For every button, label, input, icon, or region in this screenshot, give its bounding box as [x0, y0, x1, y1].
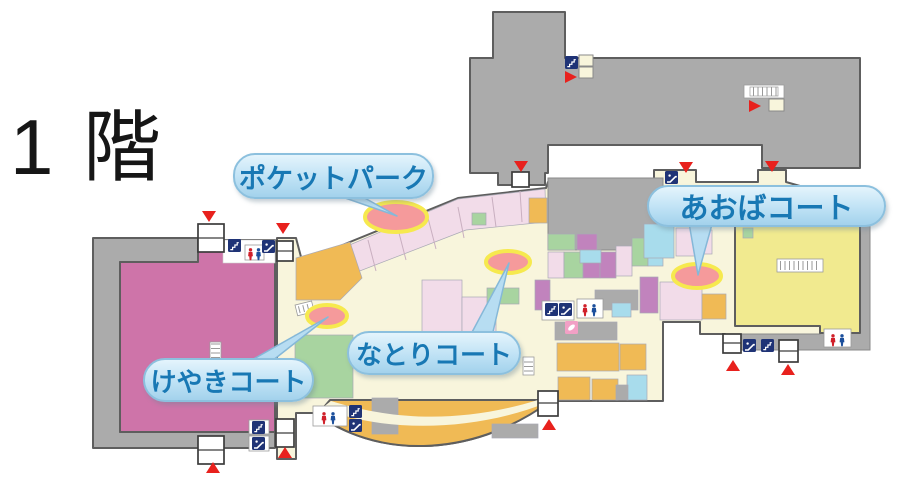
escalator-icon — [262, 240, 275, 253]
anchor-store-area — [470, 12, 860, 185]
escalator-icon — [743, 339, 756, 352]
escalator-icon — [349, 419, 362, 432]
stairs-icon — [349, 405, 362, 418]
court-label-keyaki-court: けやきコート — [143, 358, 314, 402]
stairs-icon — [565, 56, 578, 69]
department-store-area — [93, 238, 275, 448]
stairs-icon — [228, 239, 241, 252]
stairs-icon — [545, 303, 558, 316]
toilet-icon — [313, 406, 347, 426]
stairs-icon — [761, 339, 774, 352]
toilet-icon — [824, 329, 851, 347]
floor-title: 1 階 — [10, 108, 165, 186]
stairs-icon — [252, 421, 265, 434]
escalator-icon — [559, 303, 572, 316]
stairwell-icon — [210, 342, 221, 359]
toilet-icon — [577, 299, 603, 318]
nursing-room-icon — [565, 321, 578, 334]
court-label-aoba-court: あおばコート — [647, 185, 886, 227]
court-label-natori-court: なとりコート — [347, 331, 521, 375]
court-marker-keyaki — [307, 305, 347, 327]
floor-map-svg — [0, 0, 909, 490]
escalator-icon — [665, 171, 678, 184]
court-label-pocket-park: ポケットパーク — [233, 153, 434, 199]
escalator-icon — [252, 437, 265, 450]
stairwell-icon — [777, 259, 823, 272]
toilet-icon — [245, 245, 264, 260]
stairwell-icon — [523, 357, 534, 375]
floor-map-page: 1 階 ポケットパーク あおばコート なとりコート けやきコート — [0, 0, 909, 490]
